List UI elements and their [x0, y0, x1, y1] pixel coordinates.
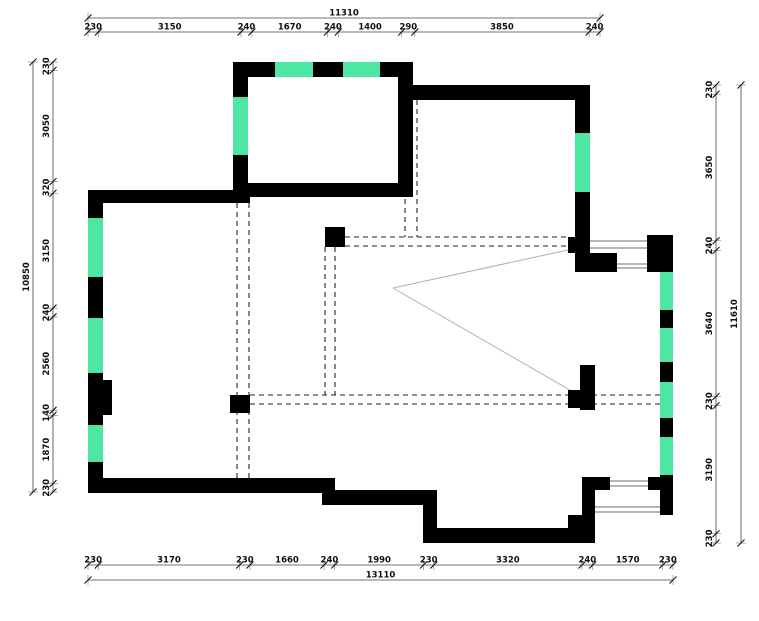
wall-segment — [248, 183, 413, 197]
wall-segment — [325, 227, 345, 247]
dimension-label: 240 — [238, 23, 256, 33]
wall-segment — [568, 515, 583, 529]
window-segment — [233, 97, 248, 155]
window-segment — [88, 425, 103, 462]
dimension-label: 1990 — [367, 556, 391, 566]
dimension-label: 2560 — [42, 352, 52, 376]
dimension-label: 3150 — [158, 23, 182, 33]
dimension-label: 3050 — [42, 114, 52, 138]
window-segment — [660, 272, 673, 310]
window-segment — [660, 437, 673, 475]
dimension-label: 240 — [705, 237, 715, 255]
floor-plan-drawing: 1131023031502401670240140029038502402303… — [0, 0, 759, 621]
wall-segment — [88, 478, 335, 493]
dimension-label: 140 — [42, 404, 52, 422]
wall-segment — [233, 62, 413, 77]
dimension-label: 230 — [420, 556, 438, 566]
dimension-label: 3170 — [157, 556, 181, 566]
window-segment — [275, 62, 313, 77]
dimension-label: 240 — [324, 23, 342, 33]
wall-segment — [430, 528, 595, 543]
wall-segment — [582, 477, 610, 490]
window-segment — [88, 318, 103, 373]
wall-segment — [230, 395, 250, 413]
dimension-label: 230 — [84, 556, 102, 566]
wall-segment — [398, 62, 413, 197]
dimension-label: 11310 — [329, 9, 359, 19]
diagonal-reference-line — [393, 250, 568, 288]
dimension-label: 3320 — [496, 556, 520, 566]
dimension-label: 230 — [705, 392, 715, 410]
window-segment — [660, 382, 673, 418]
dimension-label: 230 — [705, 81, 715, 99]
dimension-label: 230 — [705, 529, 715, 547]
dimension-label: 1670 — [278, 23, 302, 33]
diagonal-reference-line — [393, 288, 582, 397]
window-segment — [343, 62, 380, 77]
wall-segment — [648, 477, 673, 490]
dimension-label: 230 — [236, 556, 254, 566]
dimension-label: 1400 — [358, 23, 382, 33]
dimension-label: 1570 — [616, 556, 640, 566]
wall-segment — [398, 85, 590, 100]
wall-segment — [568, 237, 578, 253]
dimension-label: 3650 — [705, 156, 715, 180]
wall-segment — [568, 390, 580, 408]
dimension-label: 11610 — [730, 299, 740, 329]
dimension-label: 230 — [42, 479, 52, 497]
dimension-label: 240 — [321, 556, 339, 566]
dimension-label: 320 — [42, 179, 52, 197]
wall-segment — [580, 365, 595, 410]
dimension-label: 1870 — [42, 438, 52, 462]
dimension-label: 240 — [42, 304, 52, 322]
wall-segment — [88, 190, 250, 203]
wall-segment — [322, 490, 437, 505]
dimension-label: 3190 — [705, 458, 715, 482]
dimension-label: 1660 — [275, 556, 299, 566]
dimension-label: 3150 — [42, 239, 52, 263]
window-segment — [660, 328, 673, 362]
dimension-label: 13110 — [366, 571, 396, 581]
window-segment — [88, 218, 103, 277]
floor-plan-page: 1131023031502401670240140029038502402303… — [0, 0, 759, 621]
wall-segment — [585, 253, 617, 272]
dimension-label: 3640 — [705, 312, 715, 336]
dimension-label: 230 — [659, 556, 677, 566]
dimension-label: 3850 — [490, 23, 514, 33]
wall-segment — [103, 380, 112, 415]
wall-segment — [647, 235, 673, 272]
dimension-label: 230 — [84, 23, 102, 33]
dimension-label: 230 — [42, 57, 52, 75]
window-segment — [575, 133, 590, 192]
dimension-label: 10850 — [22, 262, 32, 292]
dimension-label: 240 — [578, 556, 596, 566]
dimension-label: 290 — [399, 23, 417, 33]
dimension-label: 240 — [586, 23, 604, 33]
